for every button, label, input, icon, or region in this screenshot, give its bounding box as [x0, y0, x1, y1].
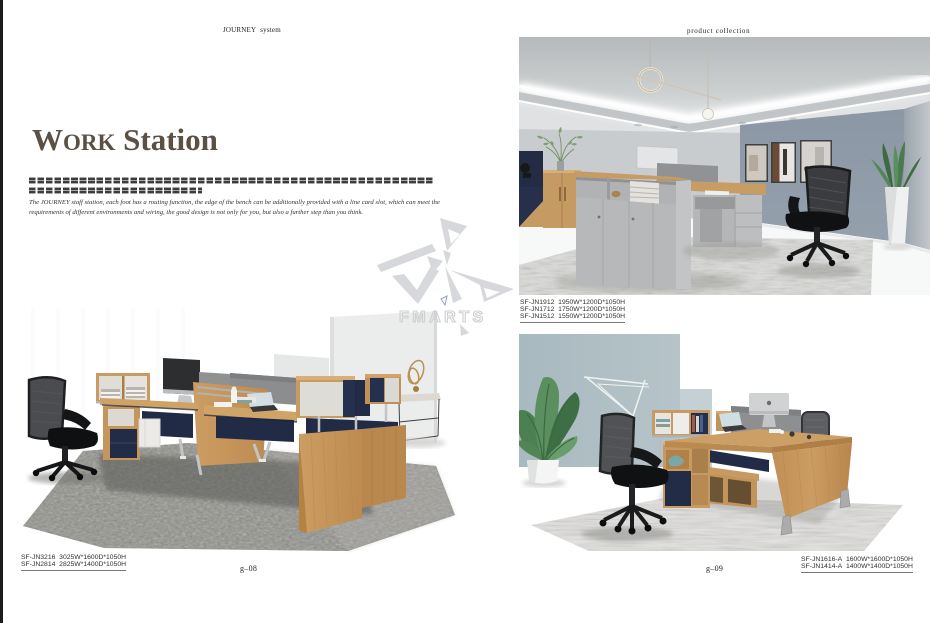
- svg-text:FMARTS: FMARTS: [399, 309, 487, 326]
